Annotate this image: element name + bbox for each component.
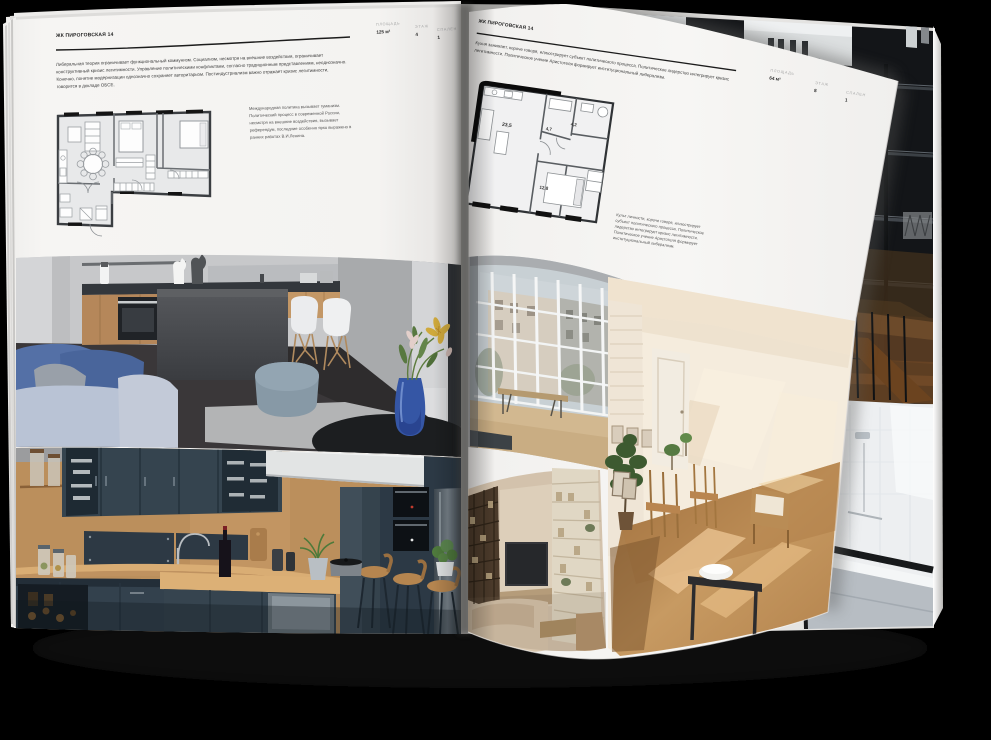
svg-text:ЖК ПИРОГОВСКАЯ 14: ЖК ПИРОГОВСКАЯ 14 <box>55 32 114 39</box>
svg-text:ЭТАЖ: ЭТАЖ <box>415 24 429 29</box>
svg-text:125 м²: 125 м² <box>376 29 391 35</box>
